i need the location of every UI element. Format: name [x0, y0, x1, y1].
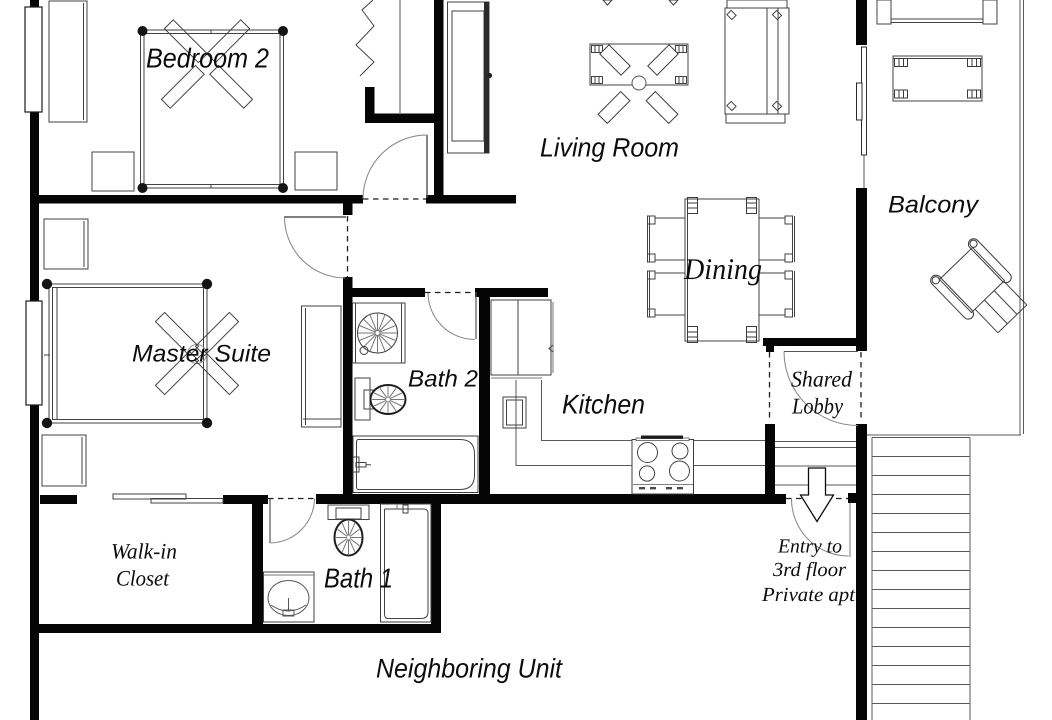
svg-text:Bedroom 2: Bedroom 2	[146, 43, 269, 74]
svg-text:Dining: Dining	[683, 253, 762, 286]
svg-text:Private apt: Private apt	[761, 584, 855, 606]
svg-text:Bath 1: Bath 1	[324, 563, 393, 594]
svg-text:Kitchen: Kitchen	[562, 390, 645, 420]
svg-text:Walk-in: Walk-in	[111, 539, 177, 564]
svg-text:Balcony: Balcony	[888, 192, 980, 219]
svg-text:Bath 2: Bath 2	[408, 366, 478, 392]
svg-text:Living Room: Living Room	[540, 133, 679, 163]
svg-text:Closet: Closet	[116, 566, 170, 591]
svg-text:Neighboring Unit: Neighboring Unit	[376, 654, 563, 684]
svg-text:Master Suite: Master Suite	[132, 341, 271, 368]
svg-text:Entry to: Entry to	[777, 536, 842, 558]
svg-text:3rd floor: 3rd floor	[772, 559, 846, 581]
svg-text:Shared: Shared	[791, 367, 853, 392]
svg-text:Lobby: Lobby	[791, 394, 843, 419]
